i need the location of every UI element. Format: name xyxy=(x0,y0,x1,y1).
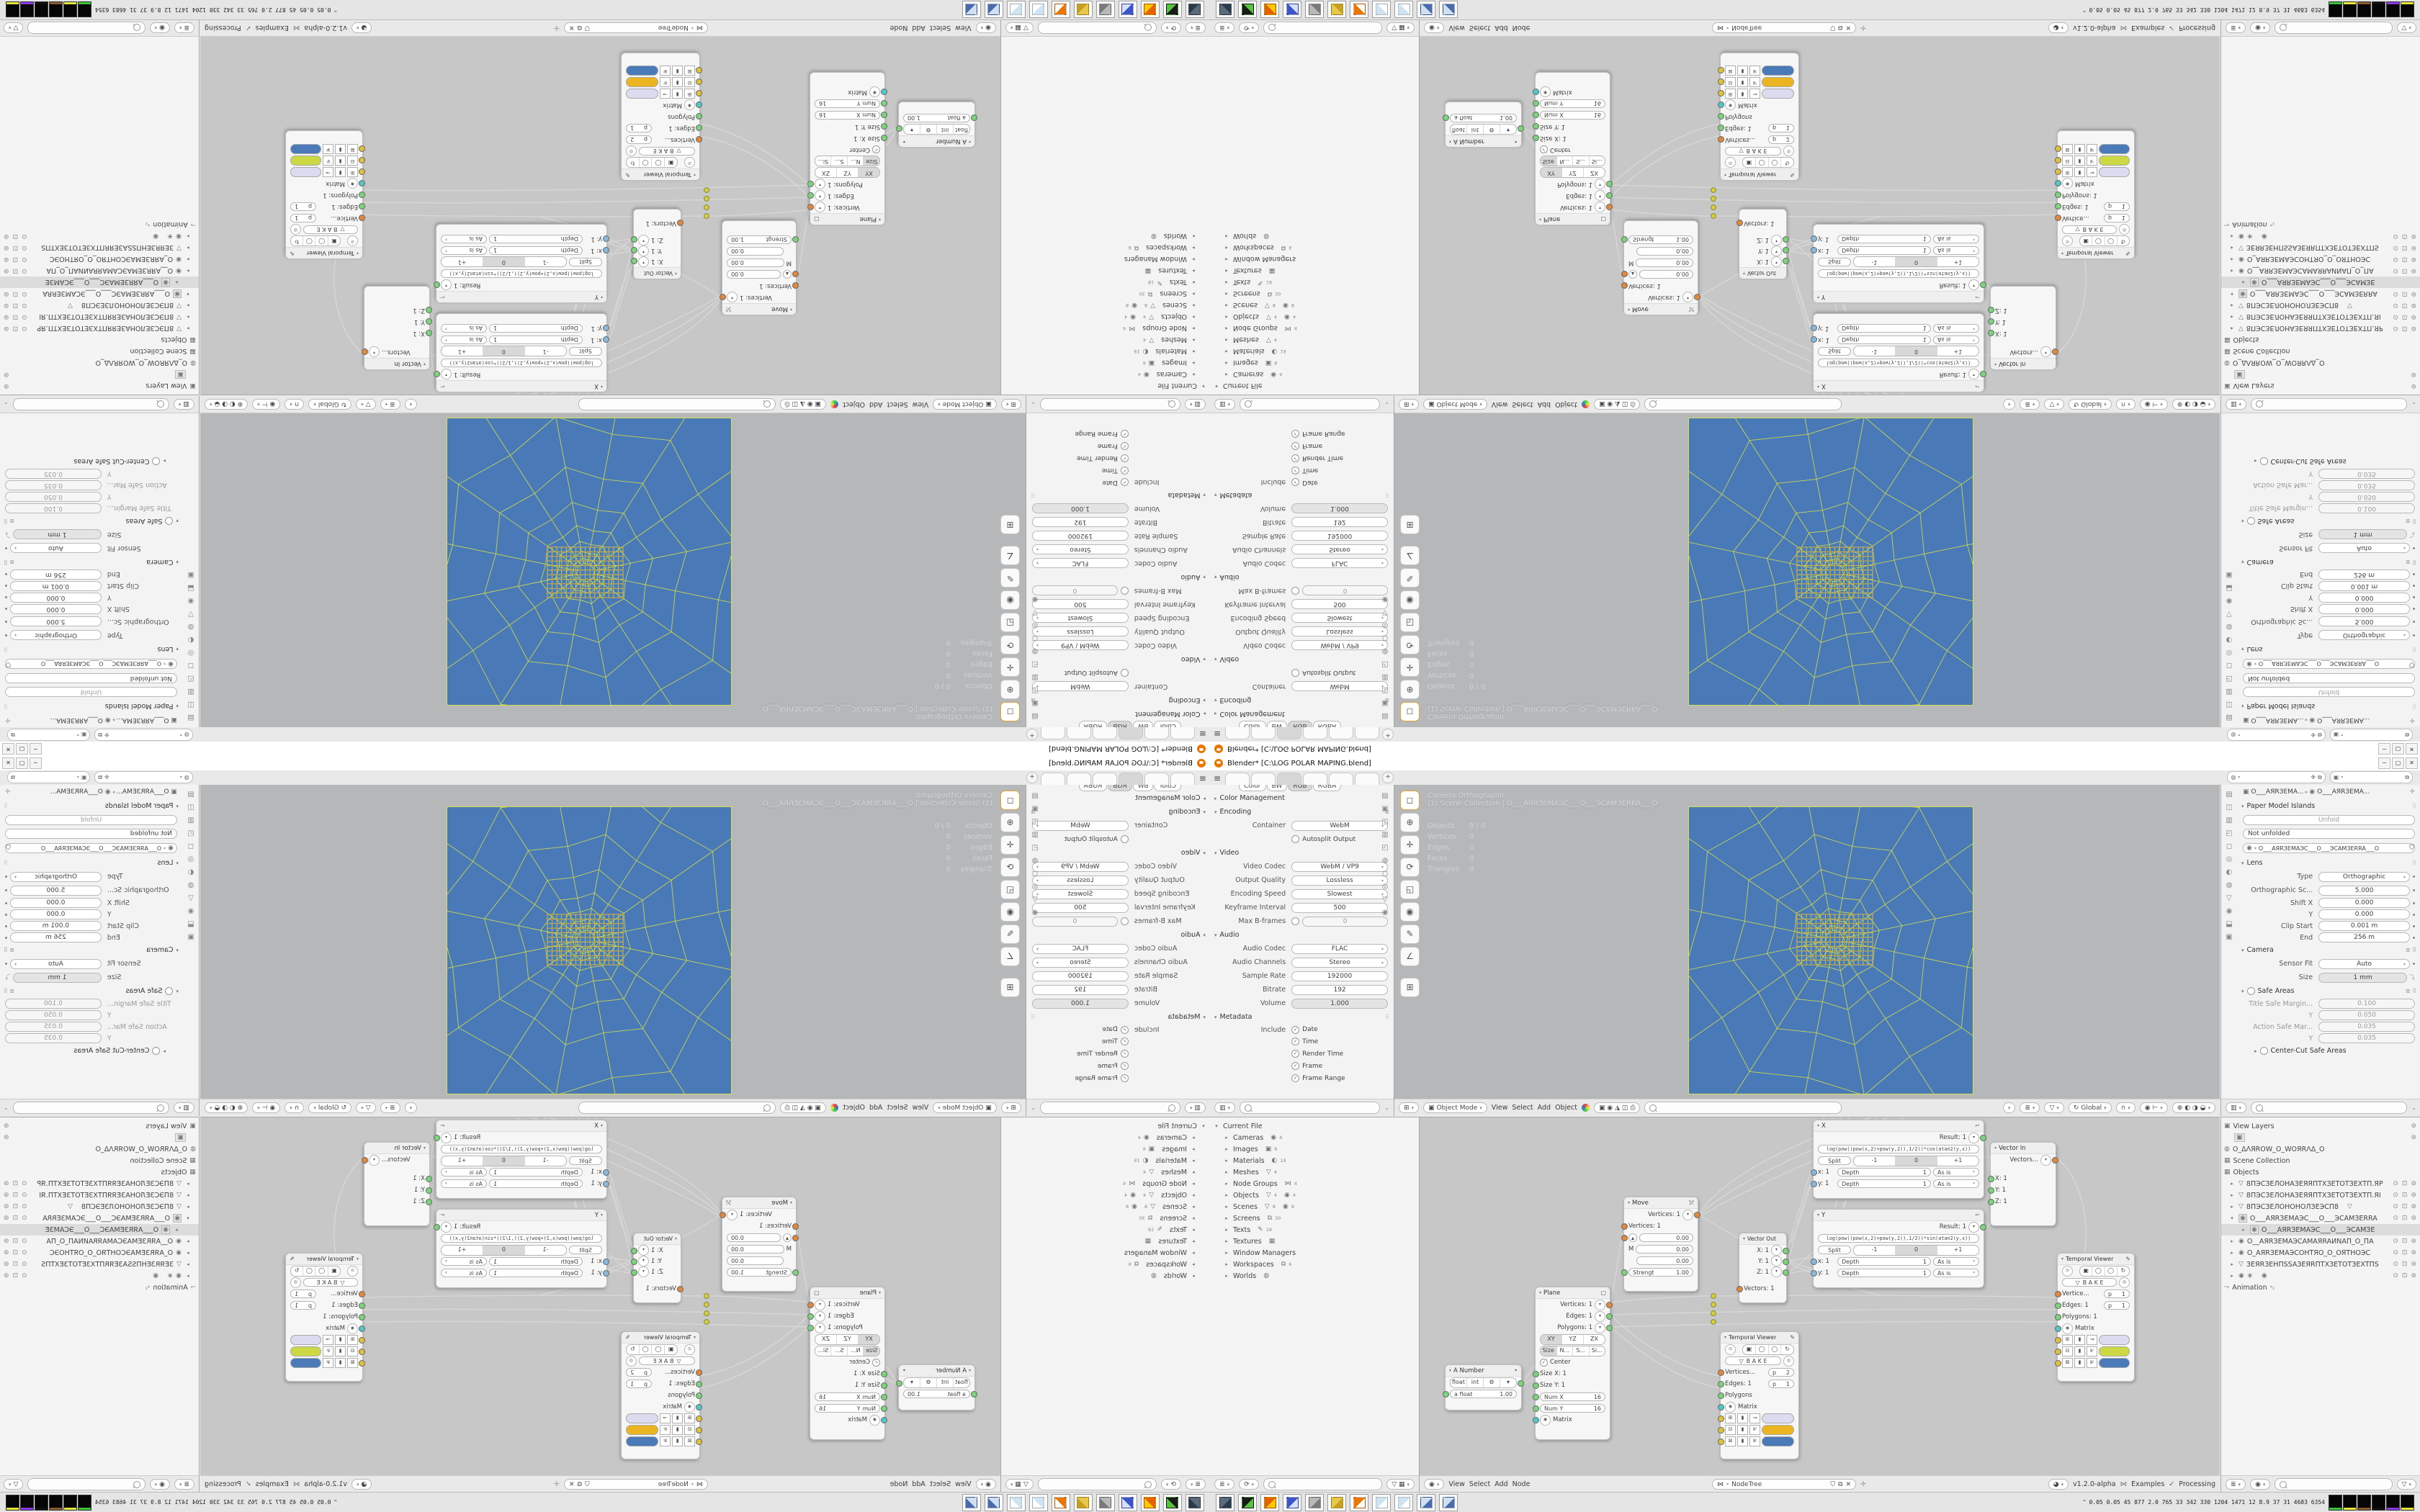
properties-tab-icon[interactable]: ◫ xyxy=(1381,686,1388,694)
video-codec-dropdown[interactable]: WebM / VP9 xyxy=(1032,862,1129,872)
result-output-socket[interactable] xyxy=(434,1224,440,1230)
matrix-socket[interactable] xyxy=(696,102,702,108)
matrix-socket[interactable] xyxy=(1533,1417,1539,1423)
viewlayer-selector[interactable]: ▣▾ ⧉ xyxy=(2330,771,2413,783)
node-move[interactable]: ▾Move⤱ Vertices: 1▾ Vertices: 1 ▴0.00 M0… xyxy=(722,1197,797,1292)
tool-7-button[interactable]: ∠ xyxy=(1400,546,1420,565)
outliner-file-item[interactable]: ▸Scenes▽8◉8 xyxy=(1210,1201,1419,1212)
select-tools-group[interactable]: ▣ ◉ ◮ ◫ ⎙ xyxy=(1594,399,1640,410)
y-output-socket[interactable] xyxy=(1783,1259,1789,1265)
outliner-file-item[interactable]: ▸Images▣6 xyxy=(1001,1143,1210,1155)
tool-3-button[interactable]: ⟳ xyxy=(1000,858,1020,877)
copy-icon[interactable]: ⧉ xyxy=(98,732,102,739)
tool-0-button[interactable]: ◻ xyxy=(1000,702,1020,721)
autosplit-checkbox[interactable] xyxy=(1121,835,1129,843)
menu-view[interactable]: View xyxy=(1448,1480,1465,1488)
video-panel[interactable]: ▾Video xyxy=(1026,652,1210,666)
video-codec-dropdown[interactable]: WebM / VP9 xyxy=(1032,641,1129,651)
taskbar-blender-icon[interactable] xyxy=(1350,1,1368,19)
metadata-include-item[interactable]: ✓Date xyxy=(1291,1026,1318,1034)
viewport-3d[interactable]: ◻⊕✛⟳◱◉✎∠⊞ Camera Orthographic (1) Scene … xyxy=(200,396,1026,727)
menu-icon[interactable]: ≡ xyxy=(1214,773,1221,783)
properties-search[interactable] xyxy=(1240,1102,1380,1114)
matrix-socket[interactable] xyxy=(2055,1326,2061,1332)
scene-selector[interactable]: ◍▾ ✛⧉ xyxy=(2227,729,2325,741)
center-cut-checkbox[interactable] xyxy=(2260,457,2268,465)
properties-tab-icon[interactable]: ◫ xyxy=(187,804,194,811)
properties-tab-strip[interactable]: ▤◫▥◰◻◎◐◍▽◉⬓▣ xyxy=(184,791,197,941)
copy-icon[interactable]: ⧉ xyxy=(2405,732,2409,739)
color-socket[interactable] xyxy=(1718,1439,1724,1445)
properties-tab-icon[interactable]: ◍ xyxy=(1382,647,1389,655)
camera-panel[interactable]: ▾Camera≣ ⠿ xyxy=(0,555,183,569)
x-input-socket[interactable] xyxy=(603,247,609,253)
addon-icon-button[interactable]: ◕▾ xyxy=(351,1479,372,1490)
edges-output-socket[interactable] xyxy=(1606,1313,1613,1320)
center-cut-checkbox[interactable] xyxy=(152,457,160,465)
x-input-socket[interactable] xyxy=(603,1259,609,1265)
outliner-object-item[interactable]: ▸▽8ПЭСЗЕЛОНОНОЛЗЕЭСП8▽⊙⊡⊚ xyxy=(0,1201,199,1212)
color-rgba-button[interactable]: RGBA xyxy=(1313,721,1342,727)
outliner-file-item[interactable]: ▸Texts✎18 xyxy=(1001,1224,1210,1236)
color-rgba-button[interactable]: RGBA xyxy=(1313,785,1342,791)
properties-tab-icon[interactable]: ▽ xyxy=(1032,608,1038,616)
properties-tab-icon[interactable]: ▣ xyxy=(1381,699,1388,707)
title-safe-y-field[interactable]: 0.050 xyxy=(5,492,102,502)
properties-tab-icon[interactable]: ◍ xyxy=(2226,623,2233,631)
color-socket[interactable] xyxy=(2055,1349,2061,1355)
color-bw-button[interactable]: BW xyxy=(1267,721,1288,727)
shift-y-field[interactable]: 0.000 xyxy=(2318,593,2410,603)
keyframe-interval-field[interactable]: 500 xyxy=(1032,903,1129,913)
animation-row[interactable]: ⤳Animation⁴₂ xyxy=(2221,219,2420,230)
center-cut-panel[interactable]: ▸Center-Cut Safe Areas xyxy=(0,1044,183,1058)
taskbar-notepad-icon[interactable] xyxy=(1394,1494,1413,1511)
clip-start-field[interactable]: 0.001 m xyxy=(10,921,102,931)
outliner-file-item[interactable]: ▸Images▣6 xyxy=(1210,1143,1419,1155)
node-formula-x[interactable]: ▾X⌐ Result: 1▾ log(pow((pow(x,2)+pow(y,2… xyxy=(436,313,607,392)
scene-collection-row[interactable]: ▦Scene Collection xyxy=(0,346,199,357)
node-temporal-viewer[interactable]: ▾Temporal Viewer✎ ⊙▣◯◯↻ ▽B A K E◎ Vertic… xyxy=(285,1253,363,1382)
examples-menu[interactable]: Examples xyxy=(256,1480,289,1488)
outliner-file-item[interactable]: ▸Materials◐19 xyxy=(1001,346,1210,357)
outliner-file-item[interactable]: ▸Workspaces⧉6 xyxy=(1210,242,1419,253)
menu-view[interactable]: View xyxy=(1492,1104,1508,1112)
node-vector-in[interactable]: ▾Vector In Vectors...▾ X: 1 Y: 1 Z: 1 xyxy=(1990,286,2056,370)
metadata-include-item[interactable]: ✓Date xyxy=(1102,1026,1129,1034)
menu-view[interactable]: View xyxy=(913,1104,929,1112)
audio-codec-dropdown[interactable]: FLAC xyxy=(1032,944,1129,954)
properties-tab-icon[interactable]: ◉ xyxy=(2226,907,2233,915)
x-output-socket[interactable] xyxy=(631,1248,637,1254)
properties-tab-icon[interactable]: ▤ xyxy=(187,714,194,721)
node-formula-y[interactable]: ▾Y⌐ Result: 1▾ log(pow((pow(x,2)+pow(y,2… xyxy=(1813,224,1984,303)
properties-tab-icon[interactable]: ◰ xyxy=(1031,844,1038,852)
z-input-socket[interactable] xyxy=(1988,307,1994,313)
editor-type-button[interactable]: ▥▾ xyxy=(1214,399,1235,410)
clip-end-field[interactable]: 256 m xyxy=(10,932,102,942)
viewport-search[interactable] xyxy=(1644,1102,1842,1114)
tool-2-button[interactable]: ✛ xyxy=(1000,657,1020,677)
polygons-output-socket[interactable] xyxy=(1606,1325,1613,1331)
fake-user-shield-icon[interactable]: ⛉ xyxy=(1830,24,1835,32)
properties-tab-icon[interactable]: ▣ xyxy=(2226,571,2232,579)
outliner-object-item[interactable]: ▸◉✳◉⊙⊡⊚ xyxy=(0,1270,199,1282)
editor-type-button[interactable]: ◉▾ xyxy=(976,1479,996,1490)
properties-tab-icon[interactable]: ◐ xyxy=(2226,636,2233,644)
mode-dropdown[interactable]: ▣ Object Mode▾ xyxy=(1423,399,1487,410)
menu-select[interactable]: Select xyxy=(887,1104,907,1112)
size-x-socket[interactable] xyxy=(881,1371,887,1377)
add-workspace-button[interactable]: + xyxy=(1382,772,1394,783)
filter-mode-dropdown[interactable]: ⟳▾ xyxy=(1161,1479,1181,1490)
metadata-include-item[interactable]: ✓Frame xyxy=(1098,442,1129,450)
vectors-input-socket[interactable] xyxy=(677,220,684,226)
menu-add[interactable]: Add xyxy=(869,400,882,408)
properties-tab-icon[interactable]: ▥ xyxy=(1031,831,1038,839)
unlink-icon[interactable]: ✕ xyxy=(569,1481,575,1488)
clip-end-field[interactable]: 256 m xyxy=(2318,932,2410,942)
pin-icon[interactable]: ✛ xyxy=(2311,774,2316,780)
y-input-socket[interactable] xyxy=(603,325,609,331)
menu-object[interactable]: Object xyxy=(843,400,865,408)
workspace-tab[interactable] xyxy=(1251,727,1276,739)
animation-row[interactable]: ⤳Animation⁴₂ xyxy=(0,1282,199,1293)
fake-user-shield-icon[interactable]: ⛉ xyxy=(2409,660,2414,667)
vertices-input-socket[interactable] xyxy=(2055,215,2061,221)
color-socket[interactable] xyxy=(359,145,365,152)
paper-model-panel[interactable]: ▾Paper Model Islands⠿ xyxy=(2237,799,2420,813)
node-formula-x[interactable]: ▾X⌐ Result: 1▾ log(pow((pow(x,2)+pow(y,2… xyxy=(1813,313,1984,392)
unlink-icon[interactable]: ✕ xyxy=(569,24,575,32)
properties-tab-icon[interactable]: ◎ xyxy=(2226,649,2233,657)
strength-socket[interactable] xyxy=(792,1269,799,1276)
properties-tab-icon[interactable]: ◫ xyxy=(1031,818,1038,826)
encoding-speed-dropdown[interactable]: Slowest xyxy=(1291,613,1388,624)
workspace-tab[interactable] xyxy=(1119,773,1143,785)
workspace-tab[interactable] xyxy=(1277,727,1301,739)
outliner-object-item[interactable]: ▸◉O___AЯRЗEMAЭC___O___ЭCAMЗE xyxy=(2221,1224,2420,1236)
properties-tab-icon[interactable]: ▣ xyxy=(1031,699,1038,707)
safe-areas-checkbox[interactable] xyxy=(2247,987,2255,995)
node-move[interactable]: ▾Move⤱ Vertices: 1▾ Vertices: 1 ▴0.00 M0… xyxy=(1623,1197,1698,1292)
tray-caret-icon[interactable]: ⌃ xyxy=(2082,6,2087,13)
color-socket[interactable] xyxy=(1718,90,1724,96)
properties-tab-icon[interactable]: ◍ xyxy=(2226,881,2233,889)
node-plane[interactable]: ▾Plane▢ Vertices: 1▾ Edges: 1▾ Polygons:… xyxy=(810,1287,885,1440)
properties-tab-icon[interactable]: ◻ xyxy=(1032,870,1038,878)
filter-button[interactable]: ▽ ▦▾ xyxy=(1005,1479,1034,1490)
collapse-chevron-icon[interactable]: ⌄ xyxy=(1031,401,1036,408)
menu-node[interactable]: Node xyxy=(890,24,908,32)
menu-add[interactable]: Add xyxy=(1538,400,1551,408)
objects-collection-row[interactable]: ▦Objects xyxy=(0,334,199,346)
taskbar-calculator-icon[interactable] xyxy=(1417,1494,1435,1511)
taskbar-notepad-icon[interactable] xyxy=(1007,1494,1026,1511)
workspace-tab[interactable] xyxy=(1119,727,1143,739)
menu-select[interactable]: Select xyxy=(930,24,951,32)
properties-tab-icon[interactable]: ◰ xyxy=(2226,675,2232,683)
taskbar-calculator-icon[interactable] xyxy=(1439,1,1458,19)
y-input-socket[interactable] xyxy=(1988,1187,1994,1194)
outliner-search[interactable] xyxy=(27,1478,145,1490)
outliner-object-item[interactable]: ▸▽8ПЭСЗЕЛОНАЗЕЯЯПТХЗЕТОТЗЕХТП.ЯР⊙⊡⊚ xyxy=(0,1178,199,1189)
tool-2-button[interactable]: ✛ xyxy=(1000,835,1020,855)
camera-panel[interactable]: ▾Camera≣ ⠿ xyxy=(2237,555,2420,569)
menu-add[interactable]: Add xyxy=(912,1480,925,1488)
properties-tab-icon[interactable]: ▥ xyxy=(2226,688,2232,696)
unfold-button[interactable]: Unfold xyxy=(2243,688,2415,698)
node-temporal-viewer[interactable]: ▾Temporal Viewer✎ ⊙▣◯◯↻ ▽B A K E◎ Vertic… xyxy=(285,130,363,259)
outliner-file-item[interactable]: ▸Textures▦ xyxy=(1210,1236,1419,1247)
mode-dropdown[interactable]: ▣ Object Mode▾ xyxy=(933,399,997,410)
outliner-file-item[interactable]: ▸Objects▽4◉4 xyxy=(1001,1189,1210,1201)
outliner-file-item[interactable]: ▸Screens⧉30 xyxy=(1210,1212,1419,1224)
x-input-socket[interactable] xyxy=(603,1169,609,1176)
taskbar-computer-icon[interactable] xyxy=(1186,1,1204,19)
outliner-file-item[interactable]: ▸Cameras◉4 xyxy=(1001,1132,1210,1143)
tool-6-button[interactable]: ✎ xyxy=(1000,568,1020,588)
clip-start-field[interactable]: 0.001 m xyxy=(2318,581,2410,591)
strength-socket[interactable] xyxy=(792,236,799,243)
safe-areas-panel[interactable]: ▾Safe Areas≣ ⠿ xyxy=(2237,984,2420,998)
outliner-object-item[interactable]: ▸◉O_AЯRЗEMAЭCOHTЯO_O_OЯTHOЭC⊙⊡⊚ xyxy=(2221,253,2420,265)
shift-y-field[interactable]: 0.000 xyxy=(10,909,102,919)
mode-transfer-icon[interactable] xyxy=(830,400,838,408)
taskbar-folder-icon[interactable] xyxy=(1074,1494,1093,1511)
display-mode-dropdown[interactable]: ≣▾ xyxy=(1214,1479,1234,1490)
x-input-socket[interactable] xyxy=(1811,1259,1817,1265)
tool-6-button[interactable]: ✎ xyxy=(1400,568,1420,588)
vertices-input-socket[interactable] xyxy=(1621,282,1628,289)
tool-4-button[interactable]: ◱ xyxy=(1000,880,1020,899)
properties-tab-icon[interactable]: ▥ xyxy=(187,688,194,696)
input-socket[interactable] xyxy=(971,1391,977,1398)
color-socket[interactable] xyxy=(696,1416,702,1422)
geometry-node-editor[interactable]: ▾A Number• floatint⚙▾ a float1.00 ▾Plane… xyxy=(1420,19,2220,395)
display-mode-dropdown[interactable]: ≣▾ xyxy=(1186,22,1206,33)
outliner-object-item[interactable]: ▸◉O_AЯRЗEMAЭCOHTЯO_O_OЯTHOЭC⊙⊡⊚ xyxy=(2221,1247,2420,1259)
workspace-tab[interactable] xyxy=(1144,773,1169,785)
display-mode-dropdown[interactable]: ≣▾ xyxy=(2226,22,2246,33)
paper-model-panel[interactable]: ▾Paper Model Islands⠿ xyxy=(0,799,183,813)
node-temporal-viewer[interactable]: ▾Temporal Viewer✎ ⊙▣◯◯↻ ▽B A K E◎ Vertic… xyxy=(2057,1253,2135,1382)
outliner-file-item[interactable]: ▸Scenes▽8◉8 xyxy=(1210,300,1419,311)
properties-tab-strip[interactable]: ▤◫▥◰◻◎◐◍▽◉⬓▣ xyxy=(2223,791,2236,941)
outliner-object-item[interactable]: ▾◉O___AЯRЗEMAЭC___O___ЭCAMЗERRA⊙⊡⊚ xyxy=(0,1212,199,1224)
matrix-socket[interactable] xyxy=(696,1404,702,1410)
taskbar-floppy-64-icon[interactable] xyxy=(1119,1494,1137,1511)
menu-object[interactable]: Object xyxy=(843,1104,865,1112)
filter-button[interactable]: ▽▾ xyxy=(4,22,23,33)
keyframe-interval-field[interactable]: 500 xyxy=(1291,903,1388,913)
color-bw-button[interactable]: BW xyxy=(1133,785,1154,791)
lens-type-dropdown[interactable]: Orthographic xyxy=(2318,872,2410,882)
viewport-search[interactable] xyxy=(1644,398,1842,410)
taskbar-firefox-icon[interactable] xyxy=(1141,1,1160,19)
vectors-input-socket[interactable] xyxy=(677,1286,684,1292)
maxb-checkbox[interactable] xyxy=(1121,917,1129,925)
node-vector-out[interactable]: ▾Vector Out X: 1▾ Y: 1▾ Z: 1▾ Vectors: 1 xyxy=(1739,1233,1787,1303)
workspace-tab[interactable] xyxy=(1170,773,1195,785)
taskbar-calculator-icon[interactable] xyxy=(962,1494,981,1511)
outliner-file-item[interactable]: ▸Window Managers xyxy=(1210,253,1419,265)
node-temporal-viewer[interactable]: ▾Temporal Viewer✎ ⊙▣◯◯↻ ▽B A K E◎ Vertic… xyxy=(2057,130,2135,259)
scene-selector[interactable]: ◍▾ ✛⧉ xyxy=(94,729,192,741)
properties-tab-icon[interactable]: ◉ xyxy=(1032,595,1039,603)
camera-panel[interactable]: ▾Camera≣ ⠿ xyxy=(0,943,183,957)
outliner-object-item[interactable]: ▸▽8ПЭСЗЕЛОНАЗЕЯЯПТХЗЕТОТЗЕХТП.ЯI⊙⊡⊚ xyxy=(0,1189,199,1201)
menu-node[interactable]: Node xyxy=(890,1480,908,1488)
ortho-scale-field[interactable]: 5.000 xyxy=(10,886,102,896)
y-output-socket[interactable] xyxy=(631,1259,637,1265)
tray-caret-icon[interactable]: ⌃ xyxy=(333,6,339,13)
properties-tab-icon[interactable]: ▽ xyxy=(188,610,194,618)
color-rgb-button[interactable]: RGB xyxy=(1108,785,1131,791)
color-rgb-button[interactable]: RGB xyxy=(1288,785,1312,791)
mode-dropdown[interactable]: ▣ Object Mode▾ xyxy=(933,1102,997,1113)
node-temporal-viewer[interactable]: ▾Temporal Viewer✎ ⊙▣◯◯↻ ▽B A K E◎ Vertic… xyxy=(621,53,700,181)
vertices-input-socket[interactable] xyxy=(2055,1291,2061,1297)
y-input-socket[interactable] xyxy=(426,1187,432,1194)
properties-tab-icon[interactable]: ◉ xyxy=(188,597,194,605)
outliner-object-item[interactable]: ▸▽8ПЭСЗЕЛОНОНОЛЗЕЭСП8▽⊙⊡⊚ xyxy=(2221,1201,2420,1212)
pin-icon[interactable]: ✛ xyxy=(5,716,11,724)
edges-input-socket[interactable] xyxy=(1718,1381,1724,1387)
container-dropdown[interactable]: WebM xyxy=(1032,682,1129,692)
edges-input-socket[interactable] xyxy=(696,1381,702,1387)
shift-y-field[interactable]: 0.000 xyxy=(2318,909,2410,919)
y-input-socket[interactable] xyxy=(603,1270,609,1277)
display-mode-dropdown[interactable]: ≣▾ xyxy=(1214,22,1234,33)
outliner-file-item[interactable]: ▸Meshes▽4 xyxy=(1210,334,1419,346)
editor-type-button[interactable]: ◉▾ xyxy=(1424,1479,1444,1490)
menu-node[interactable]: Node xyxy=(1512,1480,1531,1488)
properties-tab-icon[interactable]: ▽ xyxy=(1032,896,1038,904)
volume-slider[interactable]: 1.000 xyxy=(1032,504,1129,514)
tool-8-button[interactable]: ⊞ xyxy=(1400,978,1420,997)
color-management-panel[interactable]: ▸Color Management xyxy=(1210,791,1394,805)
outliner-object-item[interactable]: ▸▽8ПЭСЗЕЛОНОНОЛЗЕЭСП8▽⊙⊡⊚ xyxy=(0,300,199,311)
color-socket[interactable] xyxy=(696,90,702,96)
view-layers-row[interactable]: ▣View Layers⊚ xyxy=(0,380,199,392)
outliner-object-item[interactable]: ▸▽ЗEЯRЗEHПSSAЗEЯRПТХЗЕТОТЗЕХТПS⊙⊡⊚ xyxy=(2221,242,2420,253)
encoding-speed-dropdown[interactable]: Slowest xyxy=(1291,889,1388,899)
collapse-chevron-icon[interactable]: ⌄ xyxy=(2411,401,2416,408)
z-input-socket[interactable] xyxy=(426,1199,432,1205)
copy-icon[interactable]: ⧉ xyxy=(2318,732,2322,739)
taskbar-calculator-icon[interactable] xyxy=(962,1,981,19)
outliner-file-item[interactable]: ▸Images▣6 xyxy=(1001,357,1210,369)
filter-button[interactable]: ▽ ▦▾ xyxy=(1386,1479,1415,1490)
snap-toggle[interactable]: ∩▾ xyxy=(2116,1102,2136,1113)
outliner-file-item[interactable]: ▸Materials◐19 xyxy=(1210,346,1419,357)
outliner-file-item[interactable]: ▸Meshes▽4 xyxy=(1001,1166,1210,1178)
sensor-fit-dropdown[interactable]: Auto xyxy=(10,959,102,969)
animation-row[interactable]: ⤳Animation⁴₂ xyxy=(0,219,199,230)
node-tree-selector[interactable]: ⋈▾ NodeTree ⛉ ⧉ ✕ xyxy=(1712,22,1856,33)
edges-input-socket[interactable] xyxy=(2055,203,2061,210)
result-output-socket[interactable] xyxy=(1980,1224,1986,1230)
tool-5-button[interactable]: ◉ xyxy=(1000,590,1020,610)
editor-type-button[interactable]: ⊞▾ xyxy=(1001,1102,1021,1113)
input-socket[interactable] xyxy=(1443,1391,1449,1398)
snap-toggle[interactable]: ∩▾ xyxy=(284,1102,304,1113)
properties-tab-icon[interactable]: ▤ xyxy=(187,791,194,798)
metadata-include-item[interactable]: ✓Frame Range xyxy=(1291,1074,1345,1082)
unfold-button[interactable]: Unfold xyxy=(5,815,177,825)
outliner-file-item[interactable]: ▸Window Managers xyxy=(1001,253,1210,265)
copy-icon[interactable]: ⧉ xyxy=(1838,1481,1842,1488)
viewport-3d[interactable]: ◻⊕✛⟳◱◉✎∠⊞ Camera Orthographic (1) Scene … xyxy=(1394,396,2220,727)
y-input-socket[interactable] xyxy=(603,1181,609,1187)
restore-button[interactable]: ▢ xyxy=(16,743,28,755)
taskbar-folder-icon[interactable] xyxy=(1327,1,1346,19)
bitrate-field[interactable]: 192 xyxy=(1291,518,1388,528)
objects-collection-row[interactable]: ▦Objects xyxy=(0,1166,199,1178)
properties-search[interactable] xyxy=(13,398,169,410)
editor-type-button[interactable]: ⊞▾ xyxy=(1399,1102,1419,1113)
properties-tab-icon[interactable]: ▽ xyxy=(188,894,194,902)
properties-tab-icon[interactable]: ◻ xyxy=(2226,662,2232,670)
lens-panel[interactable]: ▾Lens⠿ xyxy=(2237,856,2420,870)
menu-add[interactable]: Add xyxy=(1538,1104,1551,1112)
outliner-file-item[interactable]: ▸Node Groups⋈4 xyxy=(1210,1178,1419,1189)
mode-dropdown[interactable]: ▣ Object Mode▾ xyxy=(1423,1102,1487,1113)
menu-add[interactable]: Add xyxy=(1494,1480,1507,1488)
workspace-tab[interactable] xyxy=(1144,727,1169,739)
matrix-socket[interactable] xyxy=(1718,102,1724,108)
restore-button[interactable]: ▢ xyxy=(16,757,28,769)
vertices-input-socket[interactable] xyxy=(359,215,365,221)
metadata-include-item[interactable]: ✓Frame Range xyxy=(1075,430,1128,438)
properties-search[interactable] xyxy=(2251,1102,2407,1114)
tool-1-button[interactable]: ⊕ xyxy=(1400,813,1420,832)
viewlayer-selector[interactable]: ▣▾ ⧉ xyxy=(2330,729,2413,741)
properties-tab-strip[interactable]: ▤▣◫▥◰◍◻◎▽◉ xyxy=(1028,595,1042,720)
action-safe-y-field[interactable]: 0.035 xyxy=(2318,469,2415,479)
edges-output-socket[interactable] xyxy=(807,192,814,199)
lens-panel[interactable]: ▾Lens⠿ xyxy=(0,642,183,656)
objects-collection-row[interactable]: ▦Objects xyxy=(2221,334,2420,346)
snap-toggle[interactable]: ∩▾ xyxy=(284,399,304,410)
vertices-output-socket[interactable] xyxy=(720,294,726,300)
menu-select[interactable]: Select xyxy=(1469,24,1490,32)
center-cut-checkbox[interactable] xyxy=(2260,1047,2268,1055)
tool-8-button[interactable]: ⊞ xyxy=(1000,978,1020,997)
node-formula-y[interactable]: ▾Y⌐ Result: 1▾ log(pow((pow(x,2)+pow(y,2… xyxy=(436,224,607,303)
properties-tab-icon[interactable]: ▥ xyxy=(1381,831,1388,839)
unfold-button[interactable]: Unfold xyxy=(5,688,177,698)
z-input-socket[interactable] xyxy=(1988,1199,1994,1205)
container-dropdown[interactable]: WebM xyxy=(1032,821,1129,831)
taskbar-notepad-icon[interactable] xyxy=(1029,1494,1048,1511)
y-input-socket[interactable] xyxy=(1811,1270,1817,1277)
result-output-socket[interactable] xyxy=(434,282,440,288)
view-layer-item[interactable]: ▣⊚ xyxy=(0,369,199,380)
y-input-socket[interactable] xyxy=(1811,325,1817,331)
addon-icon-button[interactable]: ◕▾ xyxy=(351,22,372,33)
outliner-file-item[interactable]: ▸Workspaces⧉6 xyxy=(1001,1259,1210,1270)
maxb-field[interactable]: 0 xyxy=(1032,586,1118,596)
keyframe-interval-field[interactable]: 500 xyxy=(1291,600,1388,610)
z-input-socket[interactable] xyxy=(426,307,432,313)
pin-icon[interactable]: ✛ xyxy=(5,788,11,796)
size-y-socket[interactable] xyxy=(1533,123,1539,130)
menu-view[interactable]: View xyxy=(955,24,972,32)
color-rgba-button[interactable]: RGBA xyxy=(1079,721,1108,727)
lens-panel[interactable]: ▾Lens⠿ xyxy=(0,856,183,870)
